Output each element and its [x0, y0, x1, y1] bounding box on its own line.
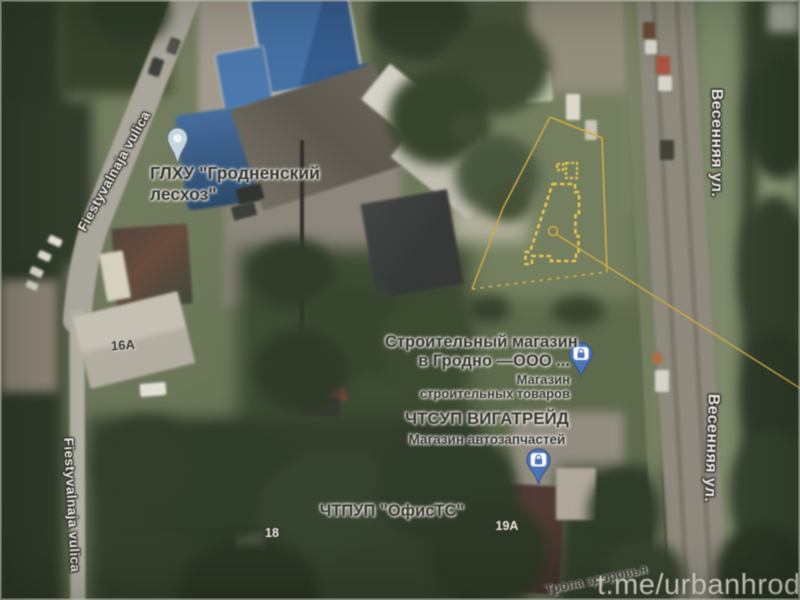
house-number-19a: 19А	[496, 519, 519, 533]
house-number-18: 18	[265, 526, 279, 540]
house-number-16a: 16А	[111, 337, 136, 354]
footprint-detail	[566, 163, 577, 178]
poi-label-line: Строительный магазин	[385, 333, 570, 352]
poi-label-line: лесхоз"	[150, 184, 320, 205]
poi-label-line: ЧТСУП ВИГАТРЕЙД	[405, 409, 569, 429]
building-footprint-outline	[526, 184, 580, 264]
poi-label-stroy[interactable]: Строительный магазин в Гродно —ООО ... М…	[385, 333, 570, 401]
poi-label-vigatreid[interactable]: ЧТСУП ВИГАТРЕЙД Магазин автозапчастей	[405, 409, 569, 447]
poi-sublabel: строительных товаров	[385, 387, 570, 401]
poi-label-leshoz[interactable]: ГЛХУ "Гродненский лесхоз"	[150, 163, 320, 205]
poi-label-line: в Гродно —ООО ...	[385, 352, 570, 371]
poi-sublabel: Магазин	[385, 373, 570, 387]
street-label-viasiennaja-upper: Весенняя ул.	[707, 89, 725, 198]
poi-label-ofists[interactable]: ЧТПУП "ОфисТС"	[320, 502, 464, 521]
vertex-marker	[549, 227, 558, 236]
satellite-map-photo: ГЛХУ "Гродненский лесхоз" Строительный м…	[0, 0, 800, 600]
footprint-detail	[557, 164, 563, 170]
store-pin-icon[interactable]	[525, 446, 552, 487]
poi-sublabel: Магазин автозапчастей	[405, 432, 569, 447]
street-label-viasiennaja-lower: Весенняя ул.	[700, 393, 722, 502]
parcel-boundary-dashed	[472, 272, 607, 289]
poi-label-line: ГЛХУ "Гродненский	[150, 163, 320, 184]
parcel-boundary	[472, 117, 550, 289]
location-pin-icon[interactable]	[166, 126, 189, 168]
watermark-telegram: t.me/urbanhrodna	[597, 569, 800, 600]
map-canvas: ГЛХУ "Гродненский лесхоз" Строительный м…	[0, 0, 800, 600]
